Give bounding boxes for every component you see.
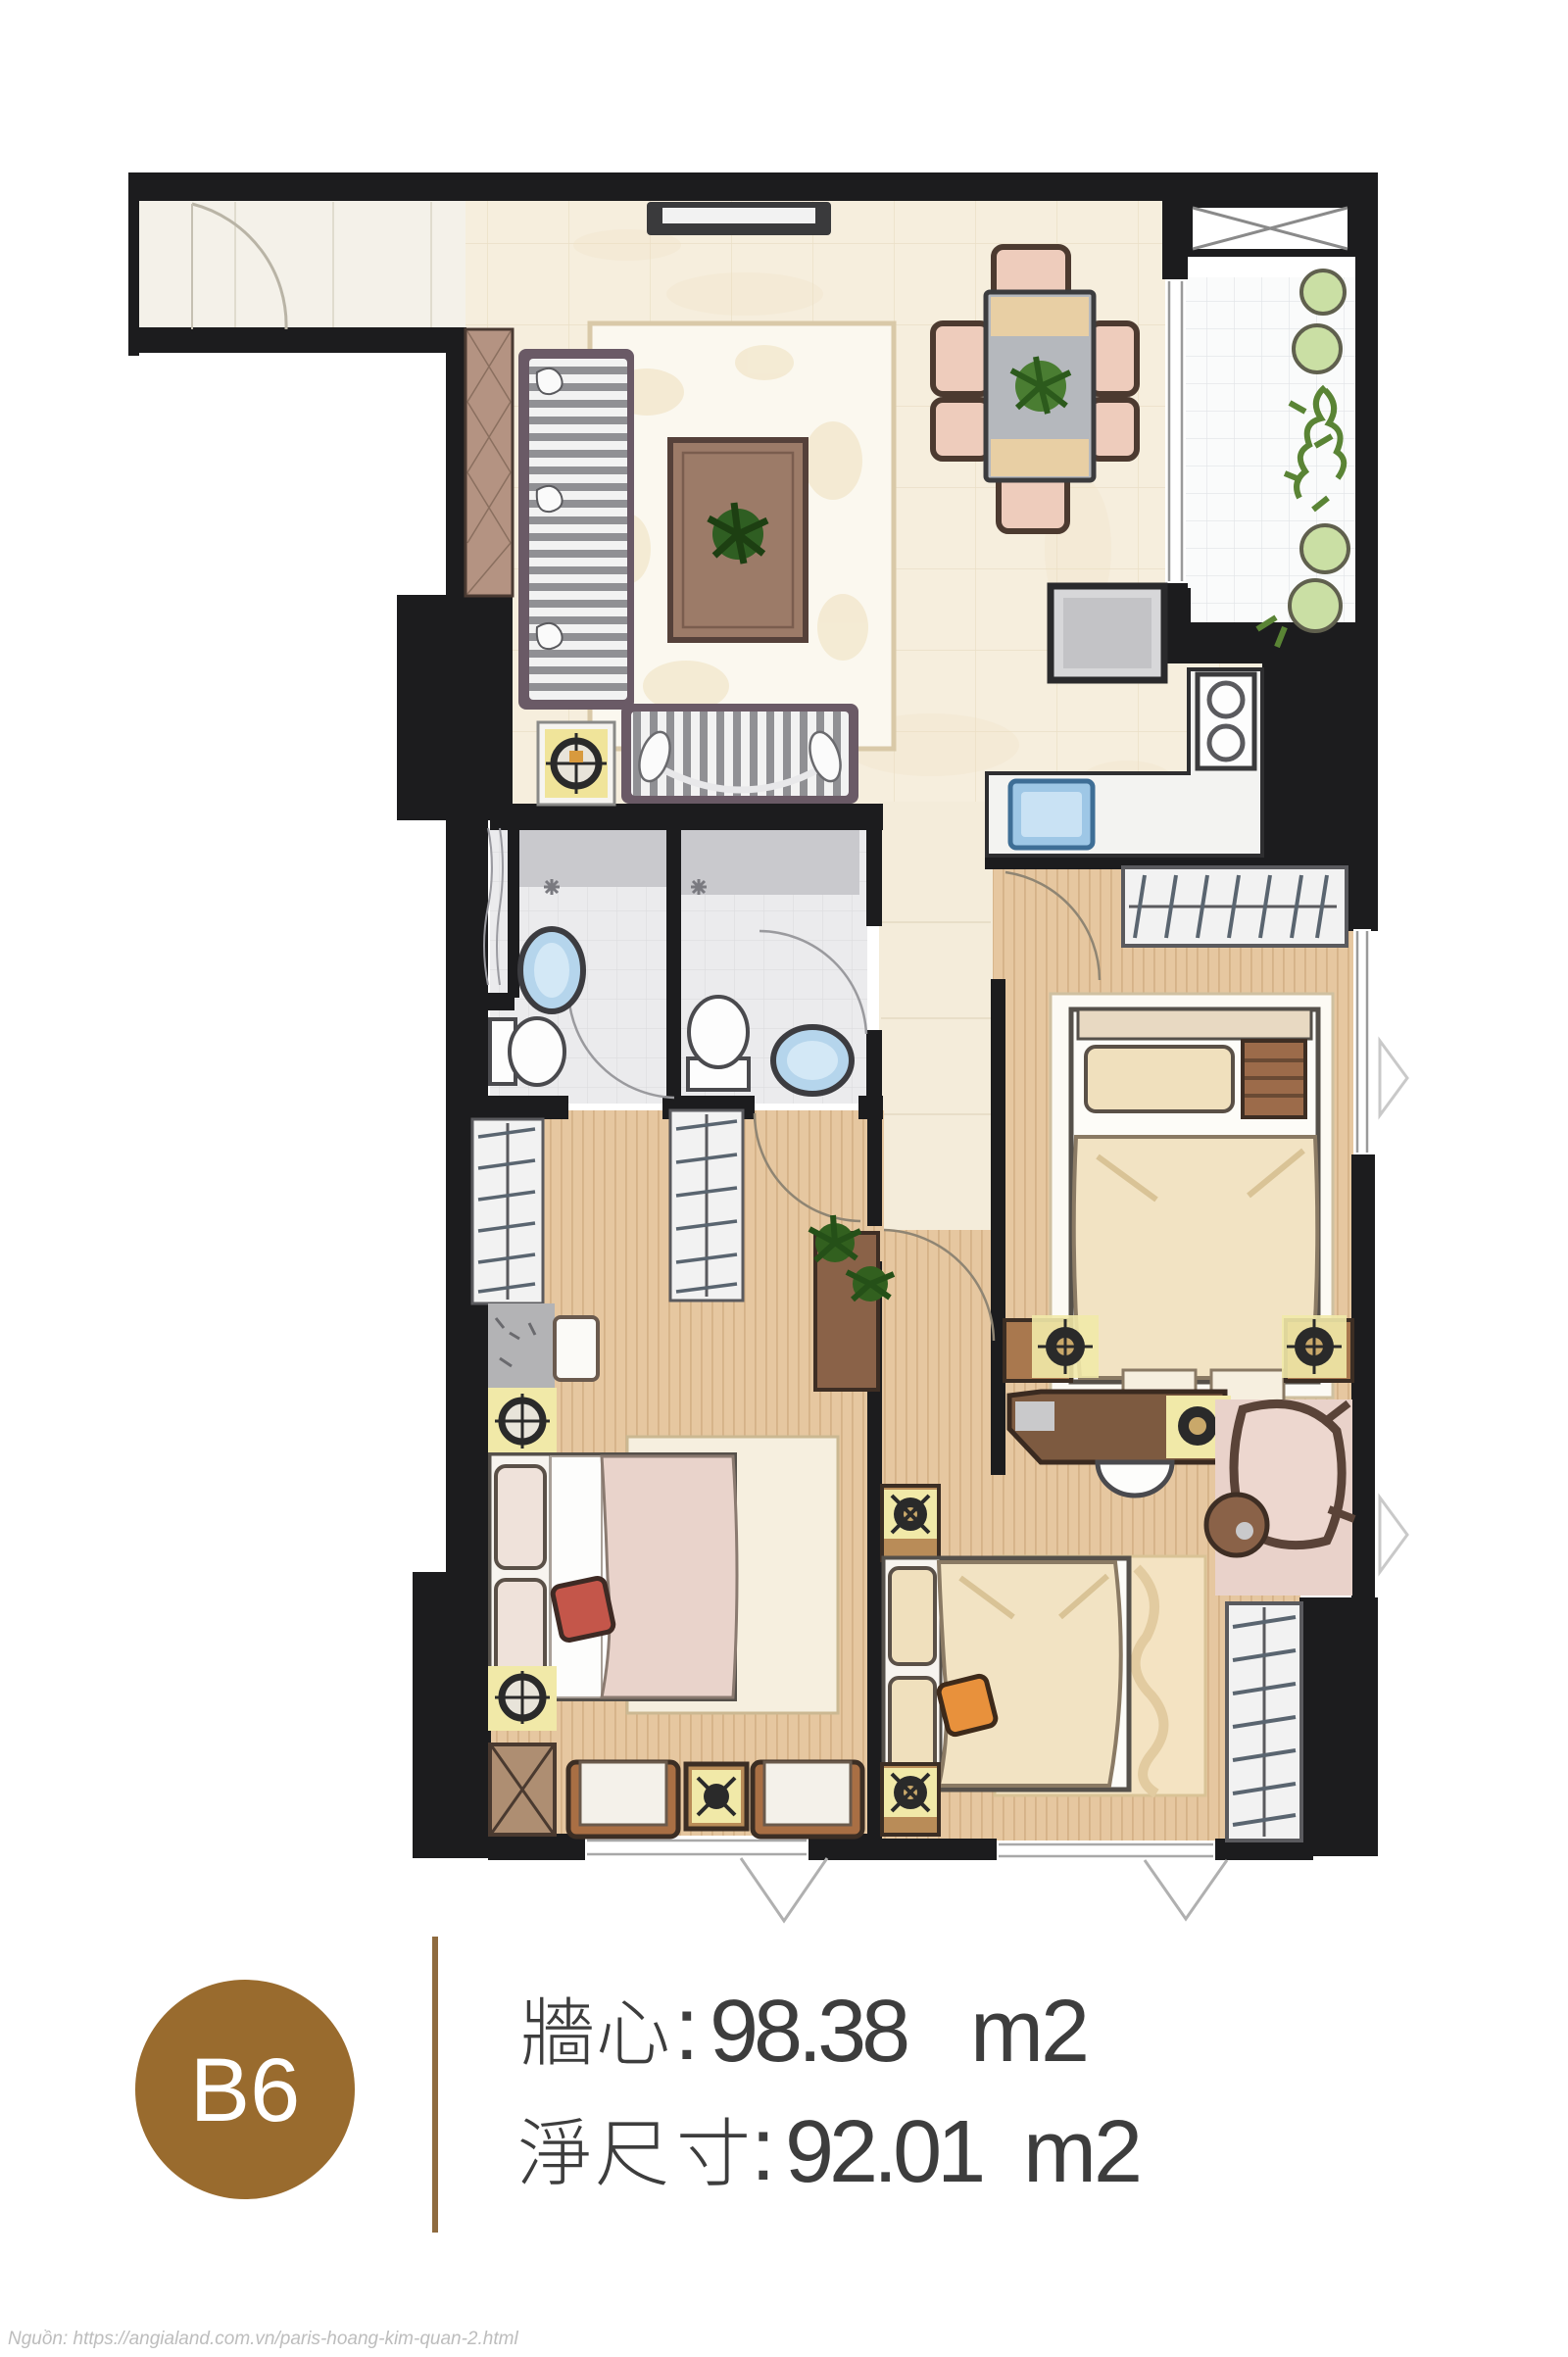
svg-text::: : bbox=[751, 2099, 776, 2199]
svg-text:m2: m2 bbox=[970, 1983, 1087, 2081]
svg-text:Nguồn: https://angialand.com.v: Nguồn: https://angialand.com.vn/paris-ho… bbox=[8, 2329, 518, 2349]
svg-text:m2: m2 bbox=[1023, 2103, 1140, 2201]
svg-text:B6: B6 bbox=[190, 2040, 301, 2140]
svg-text::: : bbox=[674, 1979, 700, 2079]
svg-text:98.38: 98.38 bbox=[710, 1983, 907, 2081]
svg-text:92.01: 92.01 bbox=[785, 2103, 982, 2201]
